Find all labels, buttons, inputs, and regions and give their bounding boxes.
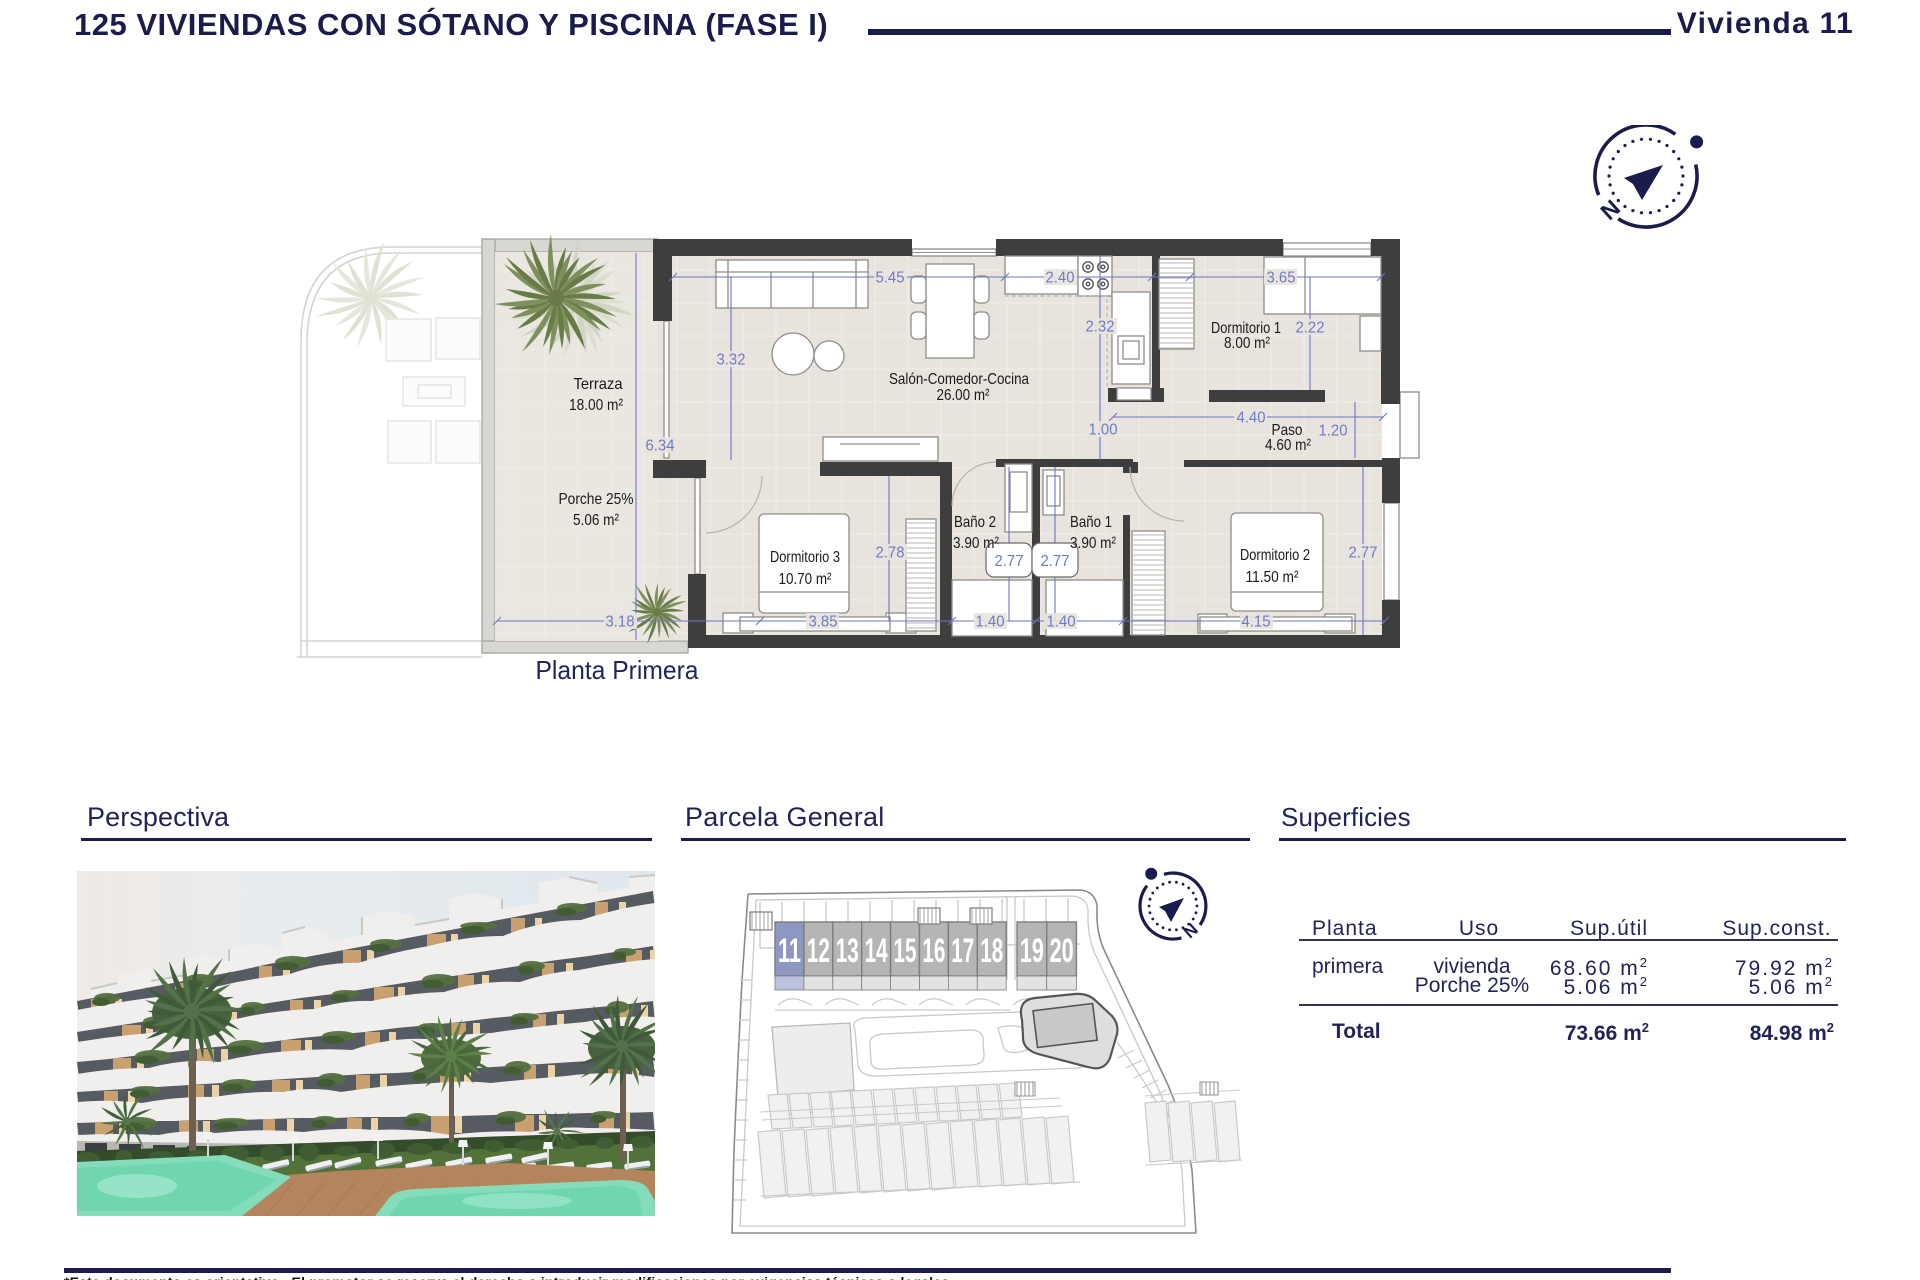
svg-text:6.34: 6.34 (646, 438, 675, 455)
svg-text:2.78: 2.78 (876, 545, 905, 562)
svg-text:3.65: 3.65 (1267, 270, 1296, 287)
svg-text:4.40: 4.40 (1237, 410, 1266, 427)
svg-text:8.00 m²: 8.00 m² (1224, 335, 1270, 352)
svg-text:13: 13 (836, 932, 859, 970)
svg-text:18.00 m²: 18.00 m² (569, 397, 623, 414)
svg-text:N: N (1180, 920, 1202, 942)
svg-text:2.77: 2.77 (995, 553, 1024, 570)
svg-text:11.50 m²: 11.50 m² (1246, 569, 1299, 586)
svg-text:14: 14 (865, 932, 888, 970)
svg-text:10.70 m²: 10.70 m² (779, 571, 832, 588)
svg-text:26.00 m²: 26.00 m² (937, 387, 990, 404)
svg-text:11: 11 (778, 932, 801, 970)
svg-text:20: 20 (1050, 932, 1074, 970)
svg-text:3.32: 3.32 (717, 352, 746, 369)
svg-text:Salón-Comedor-Cocina: Salón-Comedor-Cocina (889, 371, 1029, 388)
svg-text:12: 12 (807, 932, 830, 970)
svg-text:Baño 2: Baño 2 (954, 514, 996, 531)
svg-text:18: 18 (980, 932, 1003, 970)
svg-text:19: 19 (1020, 932, 1044, 970)
svg-text:Dormitorio 3: Dormitorio 3 (770, 549, 840, 566)
svg-text:2.77: 2.77 (1041, 553, 1070, 570)
svg-text:2.40: 2.40 (1046, 270, 1075, 287)
svg-text:1.40: 1.40 (976, 614, 1005, 631)
svg-text:Terraza: Terraza (574, 376, 623, 393)
svg-text:2.32: 2.32 (1086, 319, 1115, 336)
svg-text:Planta Primera: Planta Primera (536, 655, 700, 685)
svg-text:3.18: 3.18 (606, 614, 635, 631)
svg-text:1.40: 1.40 (1047, 614, 1076, 631)
svg-text:5.45: 5.45 (876, 270, 905, 287)
svg-text:5.06 m²: 5.06 m² (573, 512, 619, 529)
svg-text:17: 17 (951, 932, 974, 970)
svg-text:16: 16 (922, 932, 945, 970)
svg-text:3.85: 3.85 (809, 614, 838, 631)
svg-text:Baño 1: Baño 1 (1070, 514, 1112, 531)
svg-text:15: 15 (894, 932, 917, 970)
svg-text:4.15: 4.15 (1242, 614, 1271, 631)
svg-text:1.00: 1.00 (1089, 422, 1118, 439)
svg-text:3.90 m²: 3.90 m² (953, 535, 999, 552)
svg-text:Porche 25%: Porche 25% (559, 491, 634, 508)
svg-text:3.90 m²: 3.90 m² (1070, 535, 1116, 552)
